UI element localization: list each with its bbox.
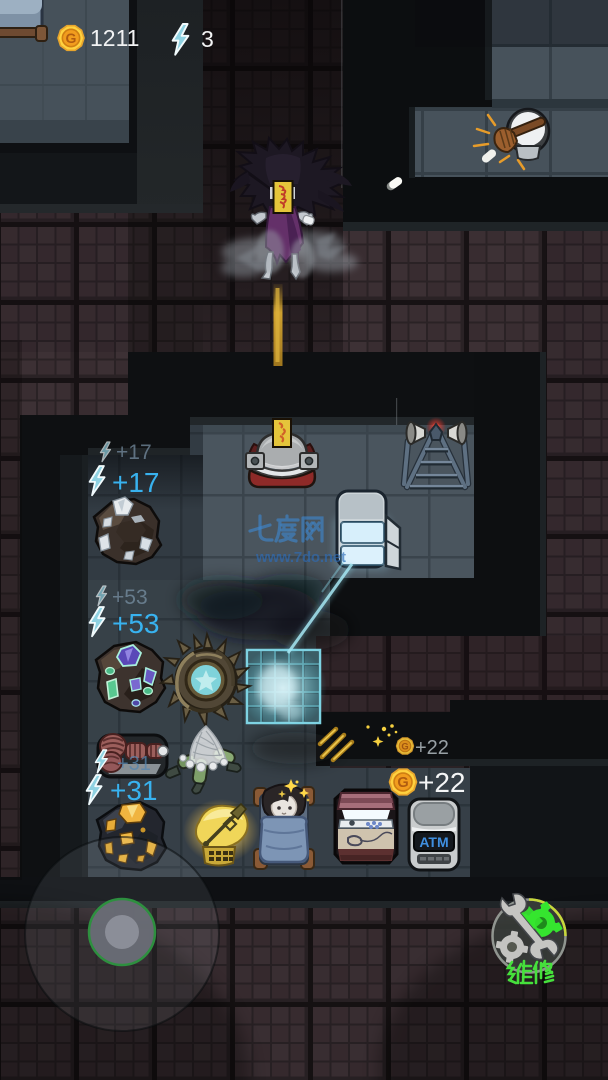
svg-text:+53: +53 bbox=[112, 586, 148, 609]
svg-text:ATM: ATM bbox=[419, 834, 448, 850]
svg-text:+22: +22 bbox=[418, 767, 466, 798]
svg-text:www.7do.net: www.7do.net bbox=[255, 549, 346, 566]
svg-text:+53: +53 bbox=[112, 608, 160, 639]
svg-text:+17: +17 bbox=[112, 467, 160, 498]
svg-text:+17: +17 bbox=[116, 441, 152, 464]
svg-text:1211: 1211 bbox=[90, 25, 139, 51]
svg-text:+31: +31 bbox=[110, 775, 158, 806]
svg-text:3: 3 bbox=[201, 26, 214, 52]
svg-text:+31: +31 bbox=[117, 753, 151, 775]
svg-text:+22: +22 bbox=[415, 737, 449, 759]
